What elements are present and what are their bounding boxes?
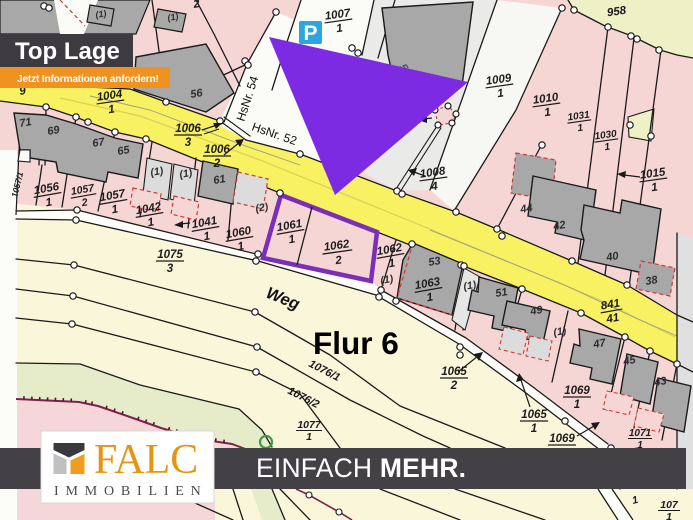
svg-text:41: 41 (605, 312, 621, 326)
svg-text:1: 1 (306, 431, 312, 443)
svg-text:51: 51 (494, 286, 508, 300)
svg-text:EINFACH MEHR.: EINFACH MEHR. (256, 453, 466, 483)
svg-text:(1): (1) (167, 11, 180, 23)
svg-text:(1): (1) (462, 279, 477, 293)
svg-text:61: 61 (212, 173, 226, 187)
svg-text:Flur 6: Flur 6 (313, 325, 399, 361)
svg-text:42: 42 (551, 219, 566, 233)
svg-text:1: 1 (574, 399, 580, 411)
svg-text:(1): (1) (379, 273, 394, 287)
svg-text:Top Lage: Top Lage (15, 38, 120, 65)
svg-text:44: 44 (518, 202, 533, 216)
svg-text:1: 1 (666, 511, 672, 520)
svg-text:FALC: FALC (94, 437, 198, 483)
svg-text:71: 71 (18, 116, 32, 130)
svg-text:1006: 1006 (204, 144, 230, 156)
svg-text:Jetzt Informationen anfordern!: Jetzt Informationen anfordern! (17, 74, 159, 85)
svg-text:IMMOBILIEN: IMMOBILIEN (54, 484, 208, 499)
svg-text:1077: 1077 (297, 419, 322, 431)
svg-text:1: 1 (531, 423, 537, 435)
svg-text:1006: 1006 (175, 123, 201, 135)
svg-text:1069: 1069 (549, 433, 575, 445)
svg-text:2: 2 (213, 158, 221, 170)
svg-text:(2): (2) (254, 201, 269, 215)
svg-text:P: P (303, 22, 317, 45)
svg-text:3: 3 (185, 137, 192, 149)
svg-text:43: 43 (652, 375, 667, 389)
svg-text:3: 3 (167, 263, 174, 275)
svg-text:(1): (1) (95, 8, 108, 20)
svg-text:1069: 1069 (564, 385, 590, 397)
svg-text:1075: 1075 (157, 249, 183, 261)
svg-text:(1): (1) (178, 167, 193, 181)
svg-text:(1): (1) (149, 165, 164, 179)
svg-text:1065: 1065 (441, 366, 467, 378)
svg-text:1071: 1071 (629, 428, 652, 439)
svg-text:2: 2 (450, 380, 458, 392)
svg-text:107: 107 (660, 499, 679, 511)
svg-text:(1): (1) (552, 325, 567, 339)
svg-text:1065: 1065 (521, 409, 547, 421)
svg-text:53: 53 (427, 255, 441, 269)
